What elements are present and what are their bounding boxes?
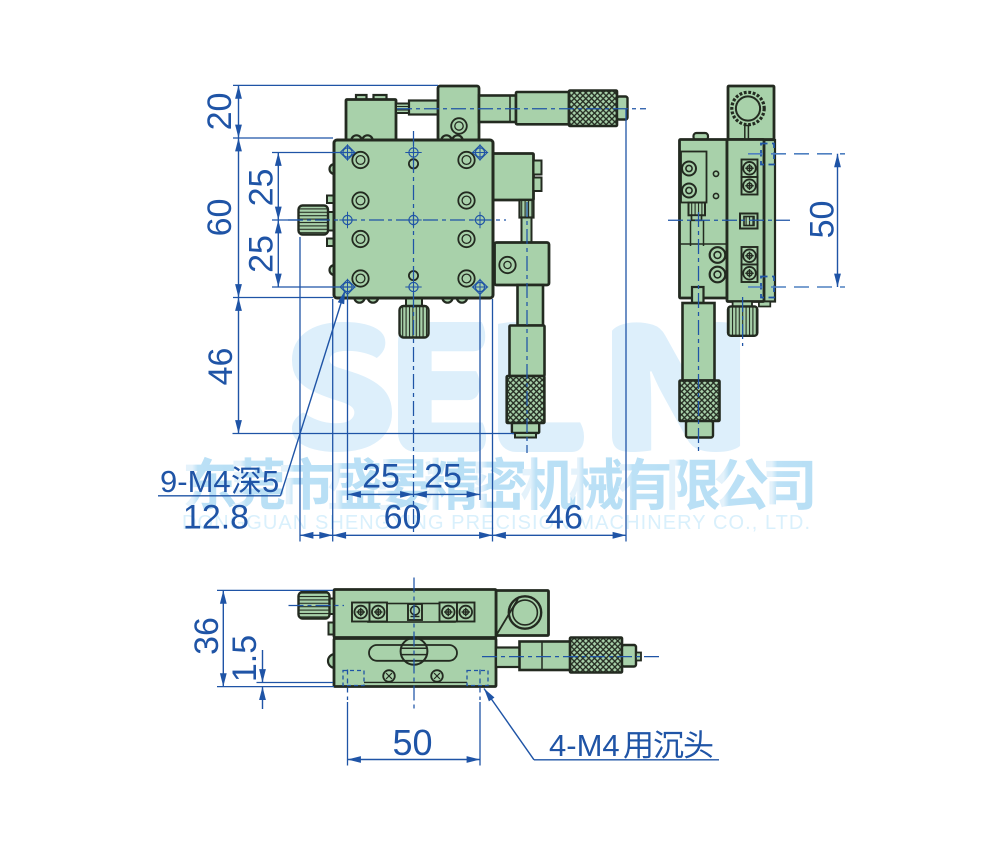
svg-text:25: 25	[424, 458, 462, 496]
svg-text:46: 46	[545, 499, 583, 537]
svg-text:25: 25	[242, 169, 280, 207]
svg-text:12.8: 12.8	[183, 499, 249, 537]
svg-text:25: 25	[362, 458, 400, 496]
svg-text:5: 5	[262, 464, 279, 499]
svg-text:60: 60	[384, 499, 422, 537]
svg-text:50: 50	[803, 201, 841, 239]
svg-text:60: 60	[201, 199, 239, 237]
svg-text:4-M4: 4-M4	[549, 728, 620, 763]
svg-text:9-M4: 9-M4	[160, 464, 231, 499]
svg-text:50: 50	[392, 722, 432, 763]
svg-text:36: 36	[188, 617, 226, 655]
svg-text:25: 25	[242, 235, 280, 273]
svg-text:DONGGUAN SHENGYING PRECISION M: DONGGUAN SHENGYING PRECISION MACHINERY C…	[182, 512, 810, 534]
svg-text:20: 20	[201, 93, 239, 131]
svg-text:46: 46	[202, 348, 240, 386]
svg-text:1.5: 1.5	[226, 635, 264, 682]
